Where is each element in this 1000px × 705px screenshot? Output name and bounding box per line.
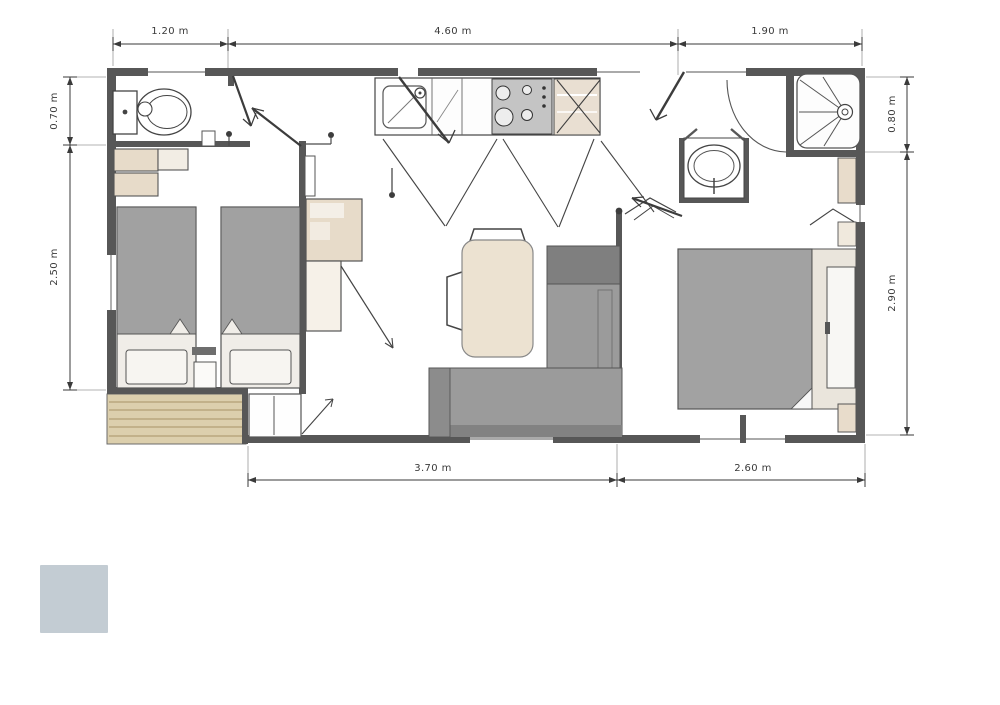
- shower-drain: [838, 105, 853, 120]
- shower-south-wall: [786, 150, 865, 157]
- hinge-dot: [616, 208, 623, 215]
- cabinet: [306, 261, 341, 331]
- double-bedroom-door: [632, 197, 682, 216]
- kitchen-tall-cabinet: [554, 79, 600, 135]
- toilet-fixture: [113, 89, 191, 135]
- chair-left: [447, 272, 462, 330]
- stove: [492, 79, 552, 134]
- wc-door: [233, 76, 256, 126]
- nightstand: [194, 362, 216, 388]
- vanity-washbasin: [684, 129, 744, 198]
- room-twin-bedroom: [114, 149, 300, 388]
- dim-label-top-center: 4.60 m: [434, 26, 472, 37]
- dim-label-right-upper: 0.80 m: [887, 95, 898, 133]
- cabinet-door-swing: [302, 399, 333, 434]
- floorplan-page: { "floor_plan": { "dimensions": { "top":…: [0, 0, 1000, 705]
- hinge-dot: [389, 192, 395, 198]
- dining-table: [462, 240, 533, 357]
- dim-label-top-left: 1.20 m: [151, 26, 189, 37]
- door-stop: [202, 131, 215, 146]
- floor-plan: 1.20 m 4.60 m 1.90 m 0.70 m 2.50 m 0.80 …: [0, 0, 1000, 705]
- double-bed: [678, 249, 856, 409]
- deck-terrace: [107, 394, 248, 444]
- single-bed-left: [117, 207, 196, 388]
- kitchen-sink: [383, 86, 426, 128]
- entry-door-second: [650, 72, 684, 120]
- wardrobe-block: [305, 156, 393, 348]
- cabinet-door-swings: [383, 139, 654, 227]
- dining-set: [447, 229, 533, 357]
- dim-label-left-lower: 2.50 m: [49, 248, 60, 286]
- entry-cabinet: [249, 394, 333, 437]
- room-wc: [113, 89, 191, 135]
- headboard-shelf: [192, 347, 216, 355]
- dim-label-bottom-right: 2.60 m: [734, 463, 772, 474]
- double-bed-mattress: [678, 249, 812, 409]
- vanity-wall-right: [744, 138, 749, 203]
- legend-swatch: [40, 565, 108, 633]
- dim-label-top-right: 1.90 m: [751, 26, 789, 37]
- storage-cabinets: [114, 149, 188, 196]
- cabinet-door-swing: [341, 266, 393, 348]
- dim-label-bottom-left: 3.70 m: [414, 463, 452, 474]
- shower-west-wall: [786, 68, 794, 157]
- hinge-dot: [226, 131, 232, 137]
- partition-details: [202, 131, 622, 214]
- twin-bedroom-door: [252, 108, 301, 146]
- vanity-wall-left: [679, 138, 684, 203]
- bedroom2-closet-stub: [740, 415, 746, 443]
- dim-label-left-upper: 0.70 m: [49, 92, 60, 130]
- pillow: [827, 267, 855, 388]
- shelf: [305, 156, 315, 196]
- single-bed-right: [221, 207, 300, 388]
- sofa-armrest: [429, 368, 450, 437]
- sofa-backrest: [547, 246, 620, 284]
- dim-label-right-lower: 2.90 m: [887, 274, 898, 312]
- hinge-dot: [328, 132, 334, 138]
